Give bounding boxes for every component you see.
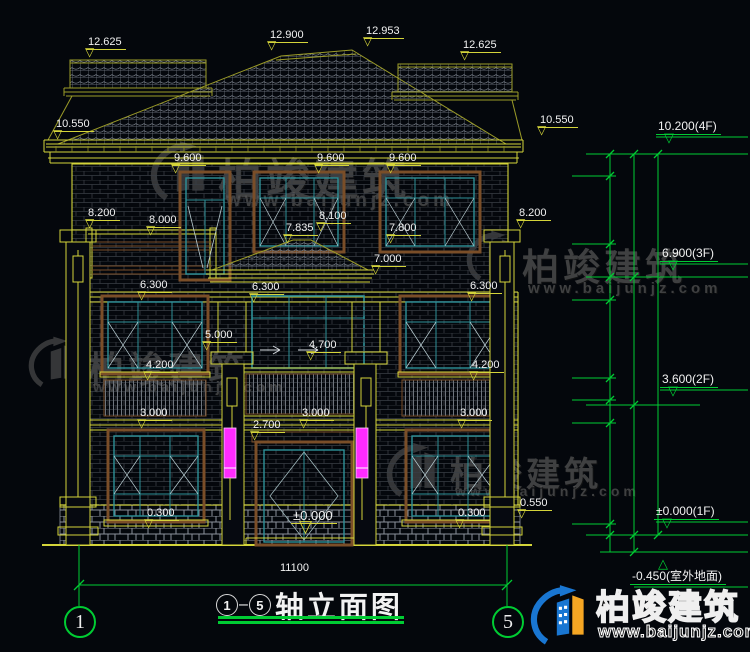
drawing-title: 1 – 5 轴立面图 xyxy=(216,584,403,626)
axis-bubble-5: 5 xyxy=(492,606,524,638)
title-underline xyxy=(218,616,404,619)
title-text: 轴立面图 xyxy=(275,584,403,626)
title-dash: – xyxy=(239,596,248,614)
roof xyxy=(48,50,522,144)
cad-elevation-screenshot: 柏竣建筑 www.baijunjz.com 柏竣建筑 www.baijunjz.… xyxy=(0,0,750,652)
axis-bubble-1: 1 xyxy=(64,606,96,638)
brand-url: www.baijunjz.com xyxy=(598,622,750,642)
brand-logo-icon xyxy=(530,582,596,648)
title-axis-from: 1 xyxy=(216,594,238,616)
axis-number: 1 xyxy=(75,611,85,634)
axis-number: 5 xyxy=(503,611,513,634)
title-underline xyxy=(218,621,404,624)
stone-base xyxy=(42,505,532,545)
elevation-drawing xyxy=(0,0,750,652)
title-axis-to: 5 xyxy=(249,594,271,616)
walls xyxy=(72,163,518,505)
dimension-chain xyxy=(572,137,748,587)
